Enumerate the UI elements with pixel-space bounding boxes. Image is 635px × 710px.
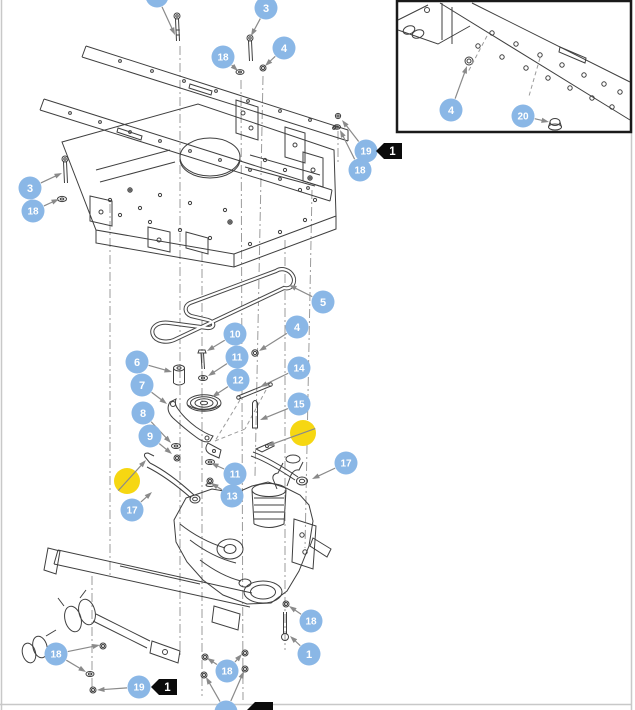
svg-text:20: 20 (517, 112, 529, 123)
callout-12[interactable]: 12 (212, 369, 250, 398)
highlight-circle[interactable] (114, 460, 146, 494)
svg-text:1: 1 (164, 682, 171, 694)
svg-text:19: 19 (360, 147, 372, 158)
callout-13[interactable]: 13 (211, 483, 244, 508)
svg-text:18: 18 (50, 650, 62, 661)
svg-text:11: 11 (230, 470, 241, 481)
svg-text:11: 11 (232, 353, 243, 364)
exploded-view-drawing: 3184420191831851041161471215891711131718… (0, 0, 635, 710)
svg-text:18: 18 (27, 207, 39, 218)
svg-text:17: 17 (126, 506, 138, 517)
callout-7[interactable]: 7 (131, 374, 168, 405)
svg-text:18: 18 (354, 166, 366, 177)
svg-text:4: 4 (448, 105, 455, 117)
callout-17[interactable]: 17 (121, 492, 153, 522)
svg-text:17: 17 (340, 459, 352, 470)
callout-18[interactable]: 18 (212, 46, 239, 72)
callout-17[interactable]: 17 (312, 452, 358, 480)
ref-tag-partial[interactable] (247, 702, 273, 710)
deck-assembly (40, 46, 348, 267)
callout-6[interactable]: 6 (126, 351, 173, 374)
svg-text:1: 1 (389, 146, 396, 158)
callout-1[interactable]: 1 (290, 636, 321, 666)
svg-text:3: 3 (263, 3, 269, 15)
top-fasteners (58, 13, 341, 202)
svg-text:4: 4 (294, 322, 301, 334)
callout-4[interactable]: 4 (265, 37, 296, 67)
svg-text:4: 4 (281, 43, 288, 55)
svg-text:19: 19 (133, 683, 145, 694)
callout-18[interactable]: 18 (207, 654, 242, 683)
svg-text:18: 18 (305, 617, 317, 628)
parts-diagram-page: 3184420191831851041161471215891711131718… (0, 0, 635, 710)
ref-tag-1[interactable]: 1 (151, 679, 177, 695)
svg-text:15: 15 (293, 400, 305, 411)
svg-text:5: 5 (320, 297, 326, 309)
callout-19[interactable]: 19 (97, 676, 151, 699)
svg-text:18: 18 (217, 53, 229, 64)
svg-text:12: 12 (232, 376, 244, 387)
svg-text:1: 1 (306, 649, 312, 661)
svg-text:8: 8 (140, 408, 146, 420)
callout-18[interactable]: 18 (22, 199, 60, 223)
drive-belt (152, 269, 294, 341)
svg-text:18: 18 (221, 667, 233, 678)
callout-3[interactable]: 3 (251, 0, 278, 36)
callout-18[interactable]: 18 (289, 606, 323, 633)
svg-text:6: 6 (134, 357, 140, 369)
callout-5[interactable]: 5 (289, 285, 335, 314)
svg-text:9: 9 (147, 431, 153, 443)
ref-tag-1[interactable]: 1 (376, 143, 402, 159)
callout-3[interactable]: 3 (19, 173, 63, 200)
svg-text:10: 10 (229, 330, 241, 341)
svg-text:14: 14 (293, 364, 305, 375)
svg-text:7: 7 (139, 380, 145, 392)
callout-11[interactable]: 11 (211, 463, 247, 486)
callout-partial[interactable] (146, 0, 176, 35)
svg-text:3: 3 (27, 183, 33, 195)
bottom-fasteners (86, 601, 289, 693)
engine-transaxle-assembly (20, 455, 331, 664)
svg-text:13: 13 (226, 492, 238, 503)
highlight-circle[interactable] (267, 420, 316, 446)
callout-4[interactable]: 4 (259, 316, 309, 352)
